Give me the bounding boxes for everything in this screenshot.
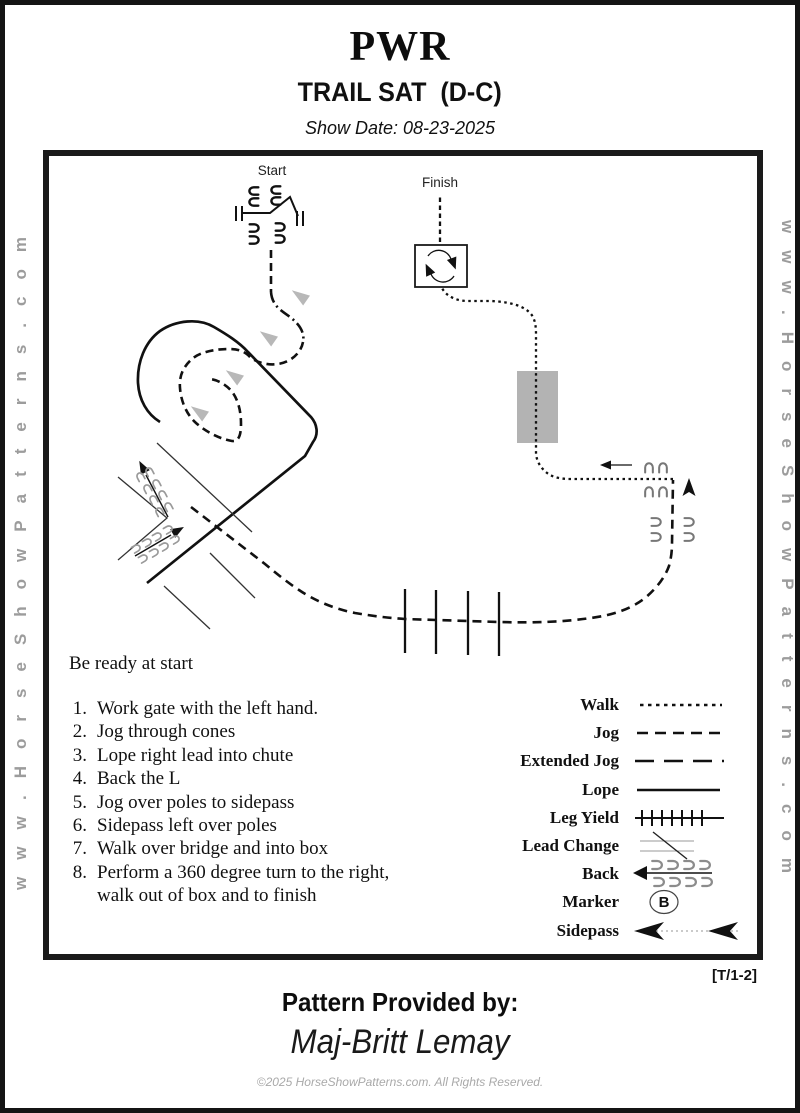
instruction-item-continuation: walk out of box and to finish [69,884,499,907]
instruction-item: 5.Jog over poles to sidepass [69,791,499,814]
class-name: TRAIL SAT (D-C) [5,77,795,108]
instruction-item: 6.Sidepass left over poles [69,814,499,837]
legend-row-walk: Walk [483,691,753,719]
instruction-item: 7.Walk over bridge and into box [69,837,499,860]
legend-symbol-lope [632,777,744,803]
watermark-left: www.HorseShowPatterns.com [8,155,34,955]
legend-row-sidepass: Sidepass [483,917,753,945]
bridge [517,371,558,443]
legend-symbol-back [632,858,744,890]
instruction-item: 4.Back the L [69,767,499,790]
show-date: Show Date: 08-23-2025 [5,118,795,139]
legend-row-back: Back [483,860,753,888]
legend-symbol-sidepass [632,918,744,944]
instruction-item: 2.Jog through cones [69,720,499,743]
legend-row-lope: Lope [483,776,753,804]
legend-symbol-jog [632,720,744,746]
legend-symbol-leg-yield [632,805,744,831]
legend: Walk Jog Extended Jog Lope Leg Yield [483,691,753,945]
provided-by-label: Pattern Provided by: [5,987,795,1018]
copyright-note: ©2025 HorseShowPatterns.com. All Rights … [5,1075,795,1089]
page-title: PWR [5,23,795,71]
pattern-sheet: PWR TRAIL SAT (D-C) Show Date: 08-23-202… [0,0,800,1113]
marker-letter: B [659,894,670,911]
legend-symbol-extended-jog [632,748,744,774]
pattern-code: [T/1-2] [712,967,757,984]
instruction-item: 1.Work gate with the left hand. [69,697,499,720]
legend-row-jog: Jog [483,719,753,747]
legend-row-marker: Marker B [483,888,753,916]
instructions: Be ready at start 1.Work gate with the l… [69,653,499,908]
provided-by-name: Maj-Britt Lemay [5,1023,795,1062]
legend-row-leg-yield: Leg Yield [483,804,753,832]
legend-symbol-marker: B [632,888,744,916]
instruction-item: 3.Lope right lead into chute [69,744,499,767]
legend-row-lead-change: Lead Change [483,832,753,860]
legend-row-extended-jog: Extended Jog [483,747,753,775]
legend-symbol-lead-change [632,831,744,861]
ready-note: Be ready at start [69,653,499,675]
finish-label: Finish [422,175,458,190]
start-label: Start [258,163,287,178]
turn-box [415,245,467,287]
watermark-right: www.HorseShowPatterns.com [774,155,800,955]
instruction-item: 8.Perform a 360 degree turn to the right… [69,861,499,884]
legend-symbol-walk [632,692,744,718]
